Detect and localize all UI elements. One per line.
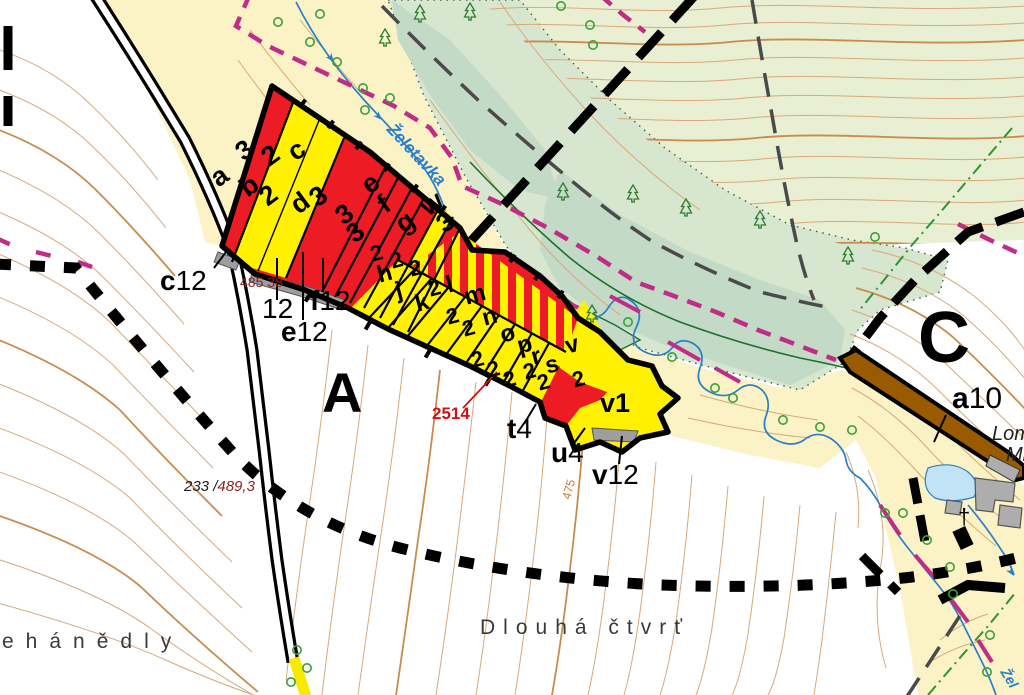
place-name-center: Dlouhá čtvrť [480, 616, 690, 639]
label-t4: t4 [507, 413, 532, 444]
place-name-lom: Lom [992, 423, 1024, 445]
region-letter-a: A [322, 361, 362, 424]
label-c12: c12 [160, 265, 207, 296]
label-u4: u4 [551, 437, 584, 468]
spot-height: 233 /489,3 [183, 478, 256, 495]
label-485-38: 485 38 [240, 274, 283, 290]
label-v12: v12 [592, 459, 639, 490]
label-a10: a10 [952, 382, 1002, 415]
parcel-label-v1: v1 [600, 388, 630, 418]
place-name-mr: Mr [1006, 444, 1024, 466]
region-letter-c: C [918, 298, 970, 378]
cross-icon: † [958, 504, 970, 529]
map-canvas: A C 3 2 c a b 2 d 3 3 3 e f g w 3 h j k … [0, 0, 1024, 695]
label-f12: f12 [310, 285, 350, 316]
label-2514: 2514 [432, 404, 470, 423]
label-e12: e12 [281, 316, 328, 347]
cadastral-map: A C 3 2 c a b 2 d 3 3 3 e f g w 3 h j k … [0, 0, 1024, 695]
place-name-left: ehánědly [2, 630, 183, 653]
